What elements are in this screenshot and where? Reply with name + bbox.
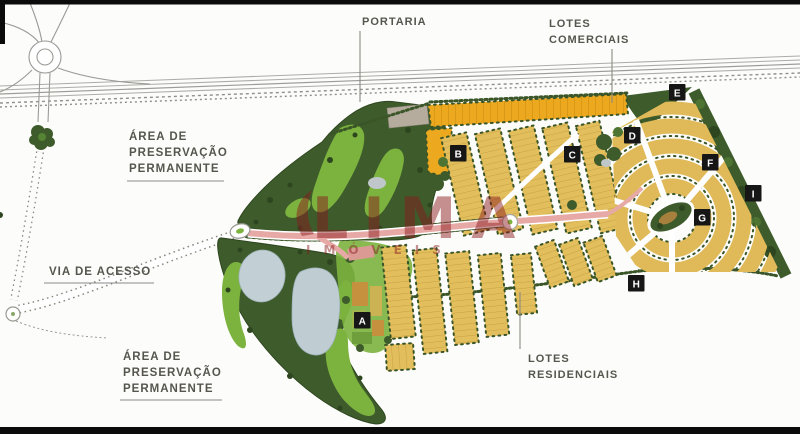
watermark-subtitle: IMÓVEIS	[306, 242, 454, 257]
gatehouse-parking-area	[387, 104, 429, 128]
label-lotes-comerciais-2: COMERCIAIS	[549, 34, 629, 46]
label-preservacao-upper-2: PRESERVAÇÃO	[129, 146, 228, 159]
svg-text:A: A	[359, 317, 366, 328]
marker-f: F	[702, 154, 719, 171]
svg-text:E: E	[674, 89, 681, 100]
svg-text:F: F	[707, 159, 713, 170]
marker-g: G	[694, 209, 711, 226]
map-canvas: LIMA IMÓVEIS PORTARIA LOTES COMERCIAIS Á…	[0, 0, 800, 434]
svg-text:G: G	[698, 214, 706, 225]
label-preservacao-upper-3: PERMANENTE	[129, 163, 220, 175]
label-preservacao-lower-3: PERMANENTE	[123, 383, 214, 395]
label-lotes-residenciais-2: RESIDENCIAIS	[528, 369, 618, 381]
label-via-de-acesso: VIA DE ACESSO	[49, 266, 151, 278]
marker-i: I	[745, 185, 762, 202]
marker-h: H	[628, 275, 645, 292]
label-preservacao-upper-1: ÁREA DE	[129, 130, 187, 143]
watermark: LIMA IMÓVEIS	[297, 186, 531, 257]
svg-text:B: B	[455, 150, 462, 161]
marker-e: E	[669, 84, 686, 101]
marker-d: D	[624, 127, 641, 144]
marker-a: A	[354, 312, 371, 329]
label-preservacao-lower-2: PRESERVAÇÃO	[123, 366, 222, 379]
svg-text:C: C	[569, 151, 576, 162]
label-lotes-residenciais-1: LOTES	[528, 353, 570, 365]
svg-text:I: I	[752, 190, 755, 201]
pond-east	[292, 268, 340, 355]
marker-b: B	[450, 145, 467, 162]
label-preservacao-lower-1: ÁREA DE	[123, 350, 181, 363]
site-plan-image: LIMA IMÓVEIS PORTARIA LOTES COMERCIAIS Á…	[0, 0, 800, 434]
svg-text:D: D	[629, 132, 636, 143]
label-portaria: PORTARIA	[362, 16, 427, 28]
svg-text:H: H	[633, 280, 640, 291]
label-lotes-comerciais-1: LOTES	[549, 18, 591, 30]
marker-c: C	[564, 146, 581, 163]
